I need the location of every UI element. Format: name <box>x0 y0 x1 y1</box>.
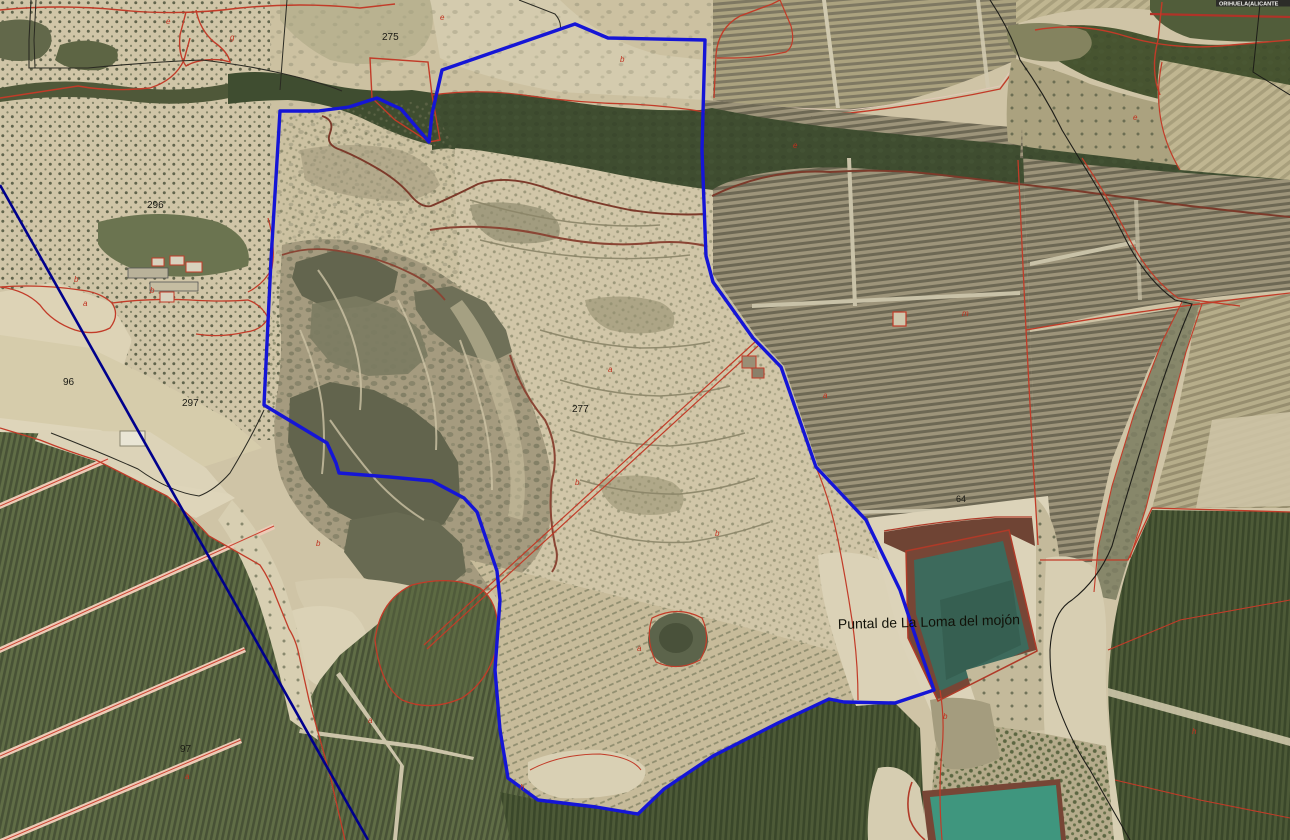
svg-text:h: h <box>520 783 525 792</box>
svg-text:297: 297 <box>182 398 199 409</box>
svg-text:b: b <box>620 55 625 64</box>
svg-text:a: a <box>823 391 828 400</box>
svg-text:e: e <box>166 17 171 26</box>
svg-text:e: e <box>440 13 445 22</box>
svg-text:b: b <box>715 529 720 538</box>
svg-text:a: a <box>637 644 642 653</box>
svg-text:a: a <box>83 299 88 308</box>
svg-text:64: 64 <box>956 494 966 504</box>
svg-text:b: b <box>316 539 321 548</box>
svg-text:e: e <box>793 141 798 150</box>
svg-text:ORIHUELA(ALICANTE: ORIHUELA(ALICANTE <box>1219 2 1279 8</box>
svg-text:m: m <box>962 309 969 318</box>
svg-text:e: e <box>1133 113 1138 122</box>
svg-text:b: b <box>150 286 155 295</box>
svg-text:a: a <box>368 716 373 725</box>
svg-text:g: g <box>230 33 235 42</box>
svg-text:296: 296 <box>147 200 164 211</box>
svg-text:97: 97 <box>180 744 192 755</box>
svg-text:b: b <box>74 275 79 284</box>
svg-text:96: 96 <box>63 377 75 388</box>
svg-text:a: a <box>608 365 613 374</box>
svg-text:b: b <box>575 478 580 487</box>
svg-text:277: 277 <box>572 404 589 415</box>
svg-text:b: b <box>943 712 948 721</box>
svg-text:a: a <box>185 772 190 781</box>
svg-text:h: h <box>1192 727 1197 736</box>
svg-text:275: 275 <box>382 32 399 43</box>
